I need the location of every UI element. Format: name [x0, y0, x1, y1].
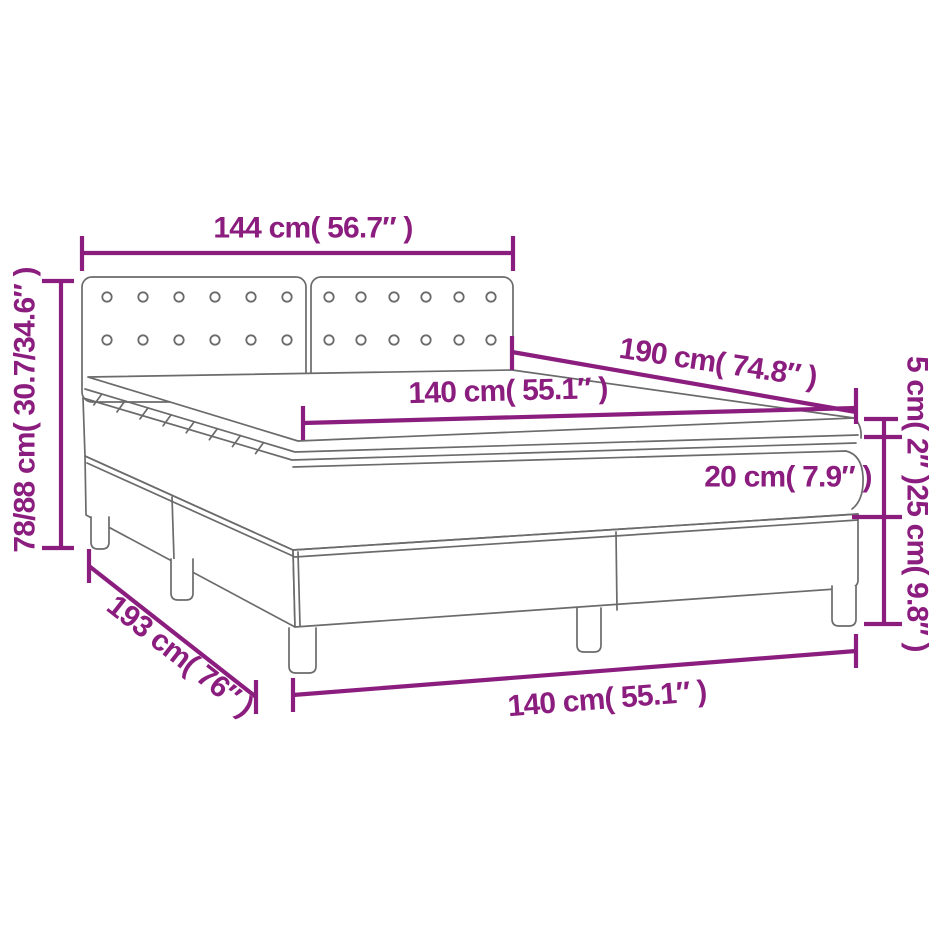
dim-length-label: 190 cm( 74.8″ ): [617, 332, 819, 394]
leg-front-right: [832, 586, 856, 626]
product-dimension-diagram: 144 cm( 56.7″ ) 78/88 cm( 30.7/34.6″ ) 1…: [0, 0, 947, 947]
dim-right-height-bracket: 5 cm( 2″ ) 20 cm( 7.9″ ) 25 cm( 9.8″ ): [704, 356, 933, 652]
leg-back-left: [91, 517, 109, 549]
dim-topper-height-label: 5 cm( 2″ ): [901, 356, 934, 484]
base-front-face-divider: [616, 532, 617, 610]
dim-headboard-width-label: 144 cm( 56.7″ ): [213, 212, 412, 245]
leg-front-left: [289, 628, 316, 673]
mattress-body-left-edge: [83, 398, 85, 456]
dim-base-height-label: 25 cm( 9.8″ ): [901, 484, 934, 651]
dim-base-length-label: 193 cm( 76″ ): [101, 589, 260, 723]
dim-base-width-label: 140 cm( 55.1″ ): [506, 675, 707, 724]
leg-front-middle: [577, 608, 601, 652]
box-spring-bed-diagram: 144 cm( 56.7″ ) 78/88 cm( 30.7/34.6″ ) 1…: [0, 0, 947, 947]
leg-side-middle: [171, 559, 193, 600]
dim-mattress-width-label: 140 cm( 55.1″ ): [408, 372, 608, 410]
base-front-face: [293, 514, 858, 627]
dim-mattress-height-label: 20 cm( 7.9″ ): [704, 461, 871, 494]
dim-total-height-label: 78/88 cm( 30.7/34.6″ ): [9, 267, 42, 552]
dim-total-height: 78/88 cm( 30.7/34.6″ ): [9, 267, 75, 552]
dim-headboard-width: 144 cm( 56.7″ ): [82, 212, 513, 272]
dim-base-width: 140 cm( 55.1″ ): [293, 634, 856, 723]
